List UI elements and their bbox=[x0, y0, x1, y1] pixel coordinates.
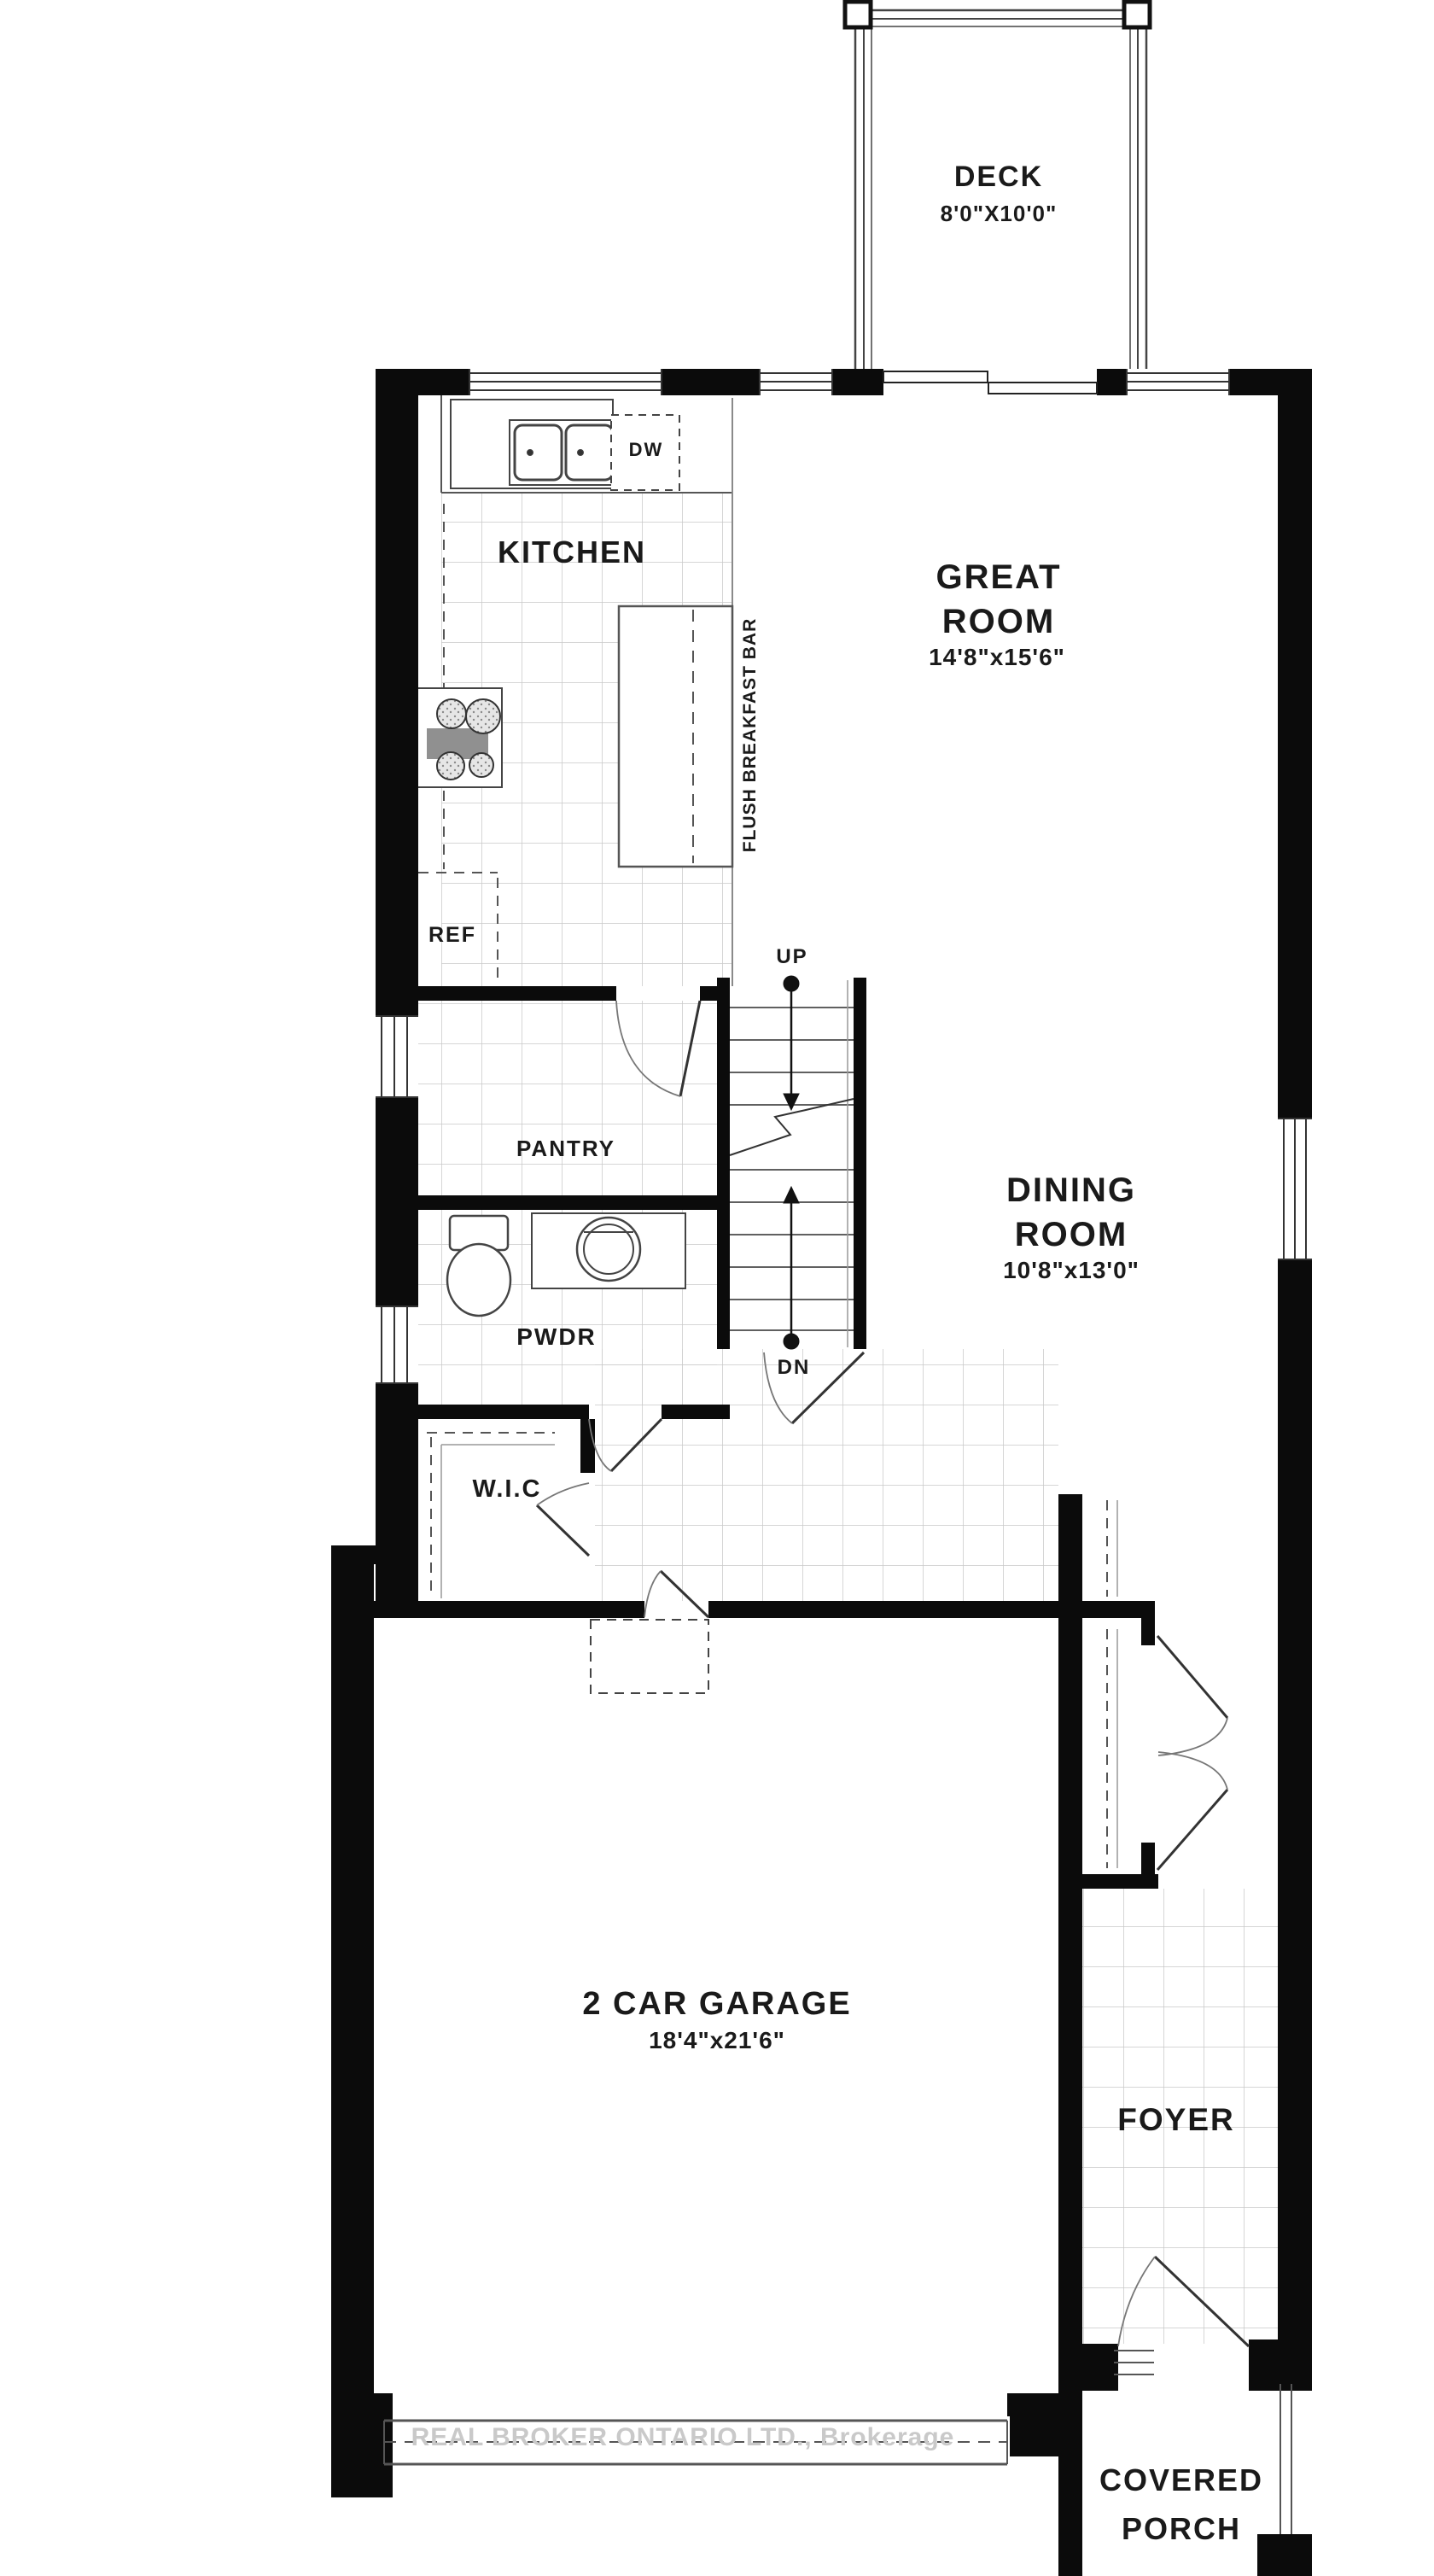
garage-landing bbox=[591, 1620, 708, 1693]
brokerage-watermark: REAL BROKER ONTARIO LTD., Brokerage bbox=[411, 2423, 955, 2452]
kitchen-label: KITCHEN bbox=[498, 533, 646, 571]
stove bbox=[417, 688, 502, 787]
garage-label: 2 CAR GARAGE bbox=[582, 1984, 851, 2025]
toilet bbox=[447, 1216, 510, 1316]
porch-edge bbox=[1280, 2384, 1291, 2534]
foyer-label: FOYER bbox=[1117, 2100, 1234, 2140]
covered-porch-label: COVERED PORCH bbox=[1099, 2456, 1263, 2553]
great-room-dims: 14'8"x15'6" bbox=[929, 642, 1065, 672]
floor-plan: DECK 8'0"X10'0" KITCHEN GREAT ROOM 14'8"… bbox=[0, 0, 1434, 2576]
entry-closet-doors bbox=[1157, 1636, 1227, 1870]
deck-dims: 8'0"X10'0" bbox=[941, 200, 1058, 228]
dining-room-dims: 10'8"x13'0" bbox=[1003, 1255, 1140, 1285]
breakfast-bar-label: FLUSH BREAKFAST BAR bbox=[739, 618, 761, 853]
wic-door bbox=[537, 1483, 589, 1556]
deck-post bbox=[1124, 2, 1150, 27]
wic-closet-rod bbox=[427, 1433, 555, 1598]
kitchen-sink bbox=[451, 400, 617, 488]
stairs-up-label: UP bbox=[776, 944, 807, 970]
wic-label: W.I.C bbox=[473, 1474, 542, 1504]
deck-post bbox=[845, 2, 871, 27]
powder-label: PWDR bbox=[516, 1322, 597, 1352]
floor-plan-drawing bbox=[0, 0, 1434, 2576]
fridge-label: REF bbox=[428, 922, 476, 949]
sliding-patio-door bbox=[883, 371, 1097, 394]
front-steps bbox=[1114, 2351, 1154, 2374]
stairs-down-label: DN bbox=[778, 1355, 811, 1381]
stair-direction-arrows bbox=[784, 976, 799, 1349]
entry-closet-rod bbox=[1107, 1500, 1117, 1868]
dining-room-label: DINING ROOM bbox=[1006, 1168, 1136, 1257]
great-room-label: GREAT ROOM bbox=[936, 555, 1061, 644]
dishwasher-label: DW bbox=[629, 438, 664, 462]
pantry-tile-floor bbox=[418, 1001, 717, 1195]
vanity-sink bbox=[532, 1213, 685, 1288]
pantry-label: PANTRY bbox=[516, 1135, 615, 1163]
kitchen-island bbox=[619, 606, 732, 867]
garage-dims: 18'4"x21'6" bbox=[649, 2025, 785, 2055]
deck-label: DECK bbox=[954, 159, 1043, 196]
hall-tile-floor bbox=[595, 1349, 1058, 1601]
